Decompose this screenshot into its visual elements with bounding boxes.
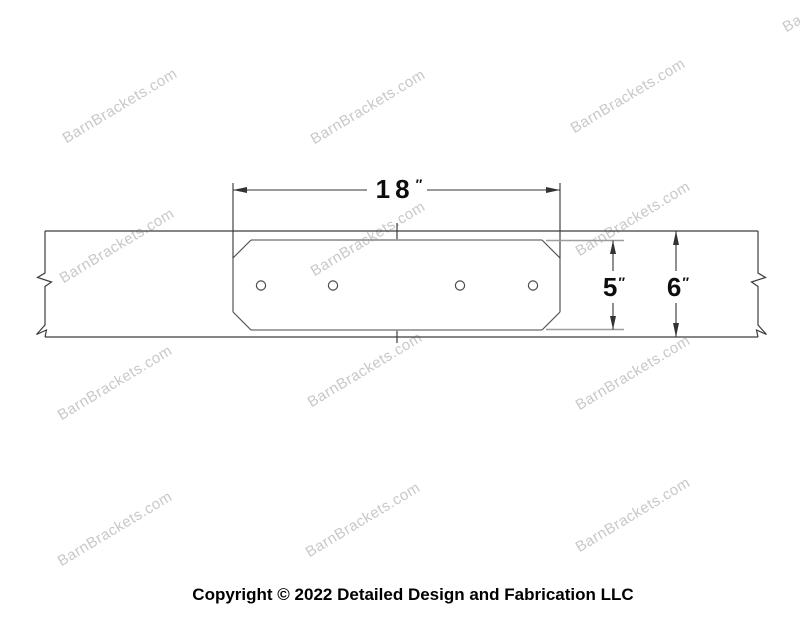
copyright-text: Copyright © 2022 Detailed Design and Fab… <box>192 585 633 605</box>
dimension-label-plate-width: 18″ <box>376 176 423 202</box>
bolt-holes <box>256 281 537 290</box>
dimension-label-beam-height: 6″ <box>667 274 689 300</box>
plate-chamfer-bottom-right <box>542 312 560 330</box>
break-line-right <box>752 231 767 337</box>
plate-chamfer-bottom-left <box>233 312 251 330</box>
plate-chamfer-top-left <box>233 240 251 258</box>
inch-mark: ″ <box>682 274 689 290</box>
bolt-hole <box>328 281 337 290</box>
bracket-technical-drawing <box>0 0 800 618</box>
dimension-value: 18 <box>376 174 415 204</box>
plate-chamfer-top-right <box>542 240 560 258</box>
dimension-value: 6 <box>667 272 681 302</box>
bolt-hole <box>528 281 537 290</box>
drawing-canvas: BarnBrackets.com BarnBrackets.com BarnBr… <box>0 0 800 618</box>
dimension-value: 5 <box>603 272 617 302</box>
arrow-down-icon <box>610 316 616 330</box>
arrow-up-icon <box>610 241 616 255</box>
bolt-hole <box>455 281 464 290</box>
break-line-left <box>37 231 52 337</box>
inch-mark: ″ <box>618 274 625 290</box>
dimension-label-plate-height: 5″ <box>603 274 625 300</box>
inch-mark: ″ <box>416 176 423 192</box>
arrow-left-icon <box>233 187 247 193</box>
bracket-plate-outline <box>233 240 560 330</box>
arrow-up-icon <box>673 231 679 245</box>
bolt-hole <box>256 281 265 290</box>
arrow-down-icon <box>673 323 679 337</box>
beam-outline <box>37 223 767 343</box>
arrow-right-icon <box>546 187 560 193</box>
